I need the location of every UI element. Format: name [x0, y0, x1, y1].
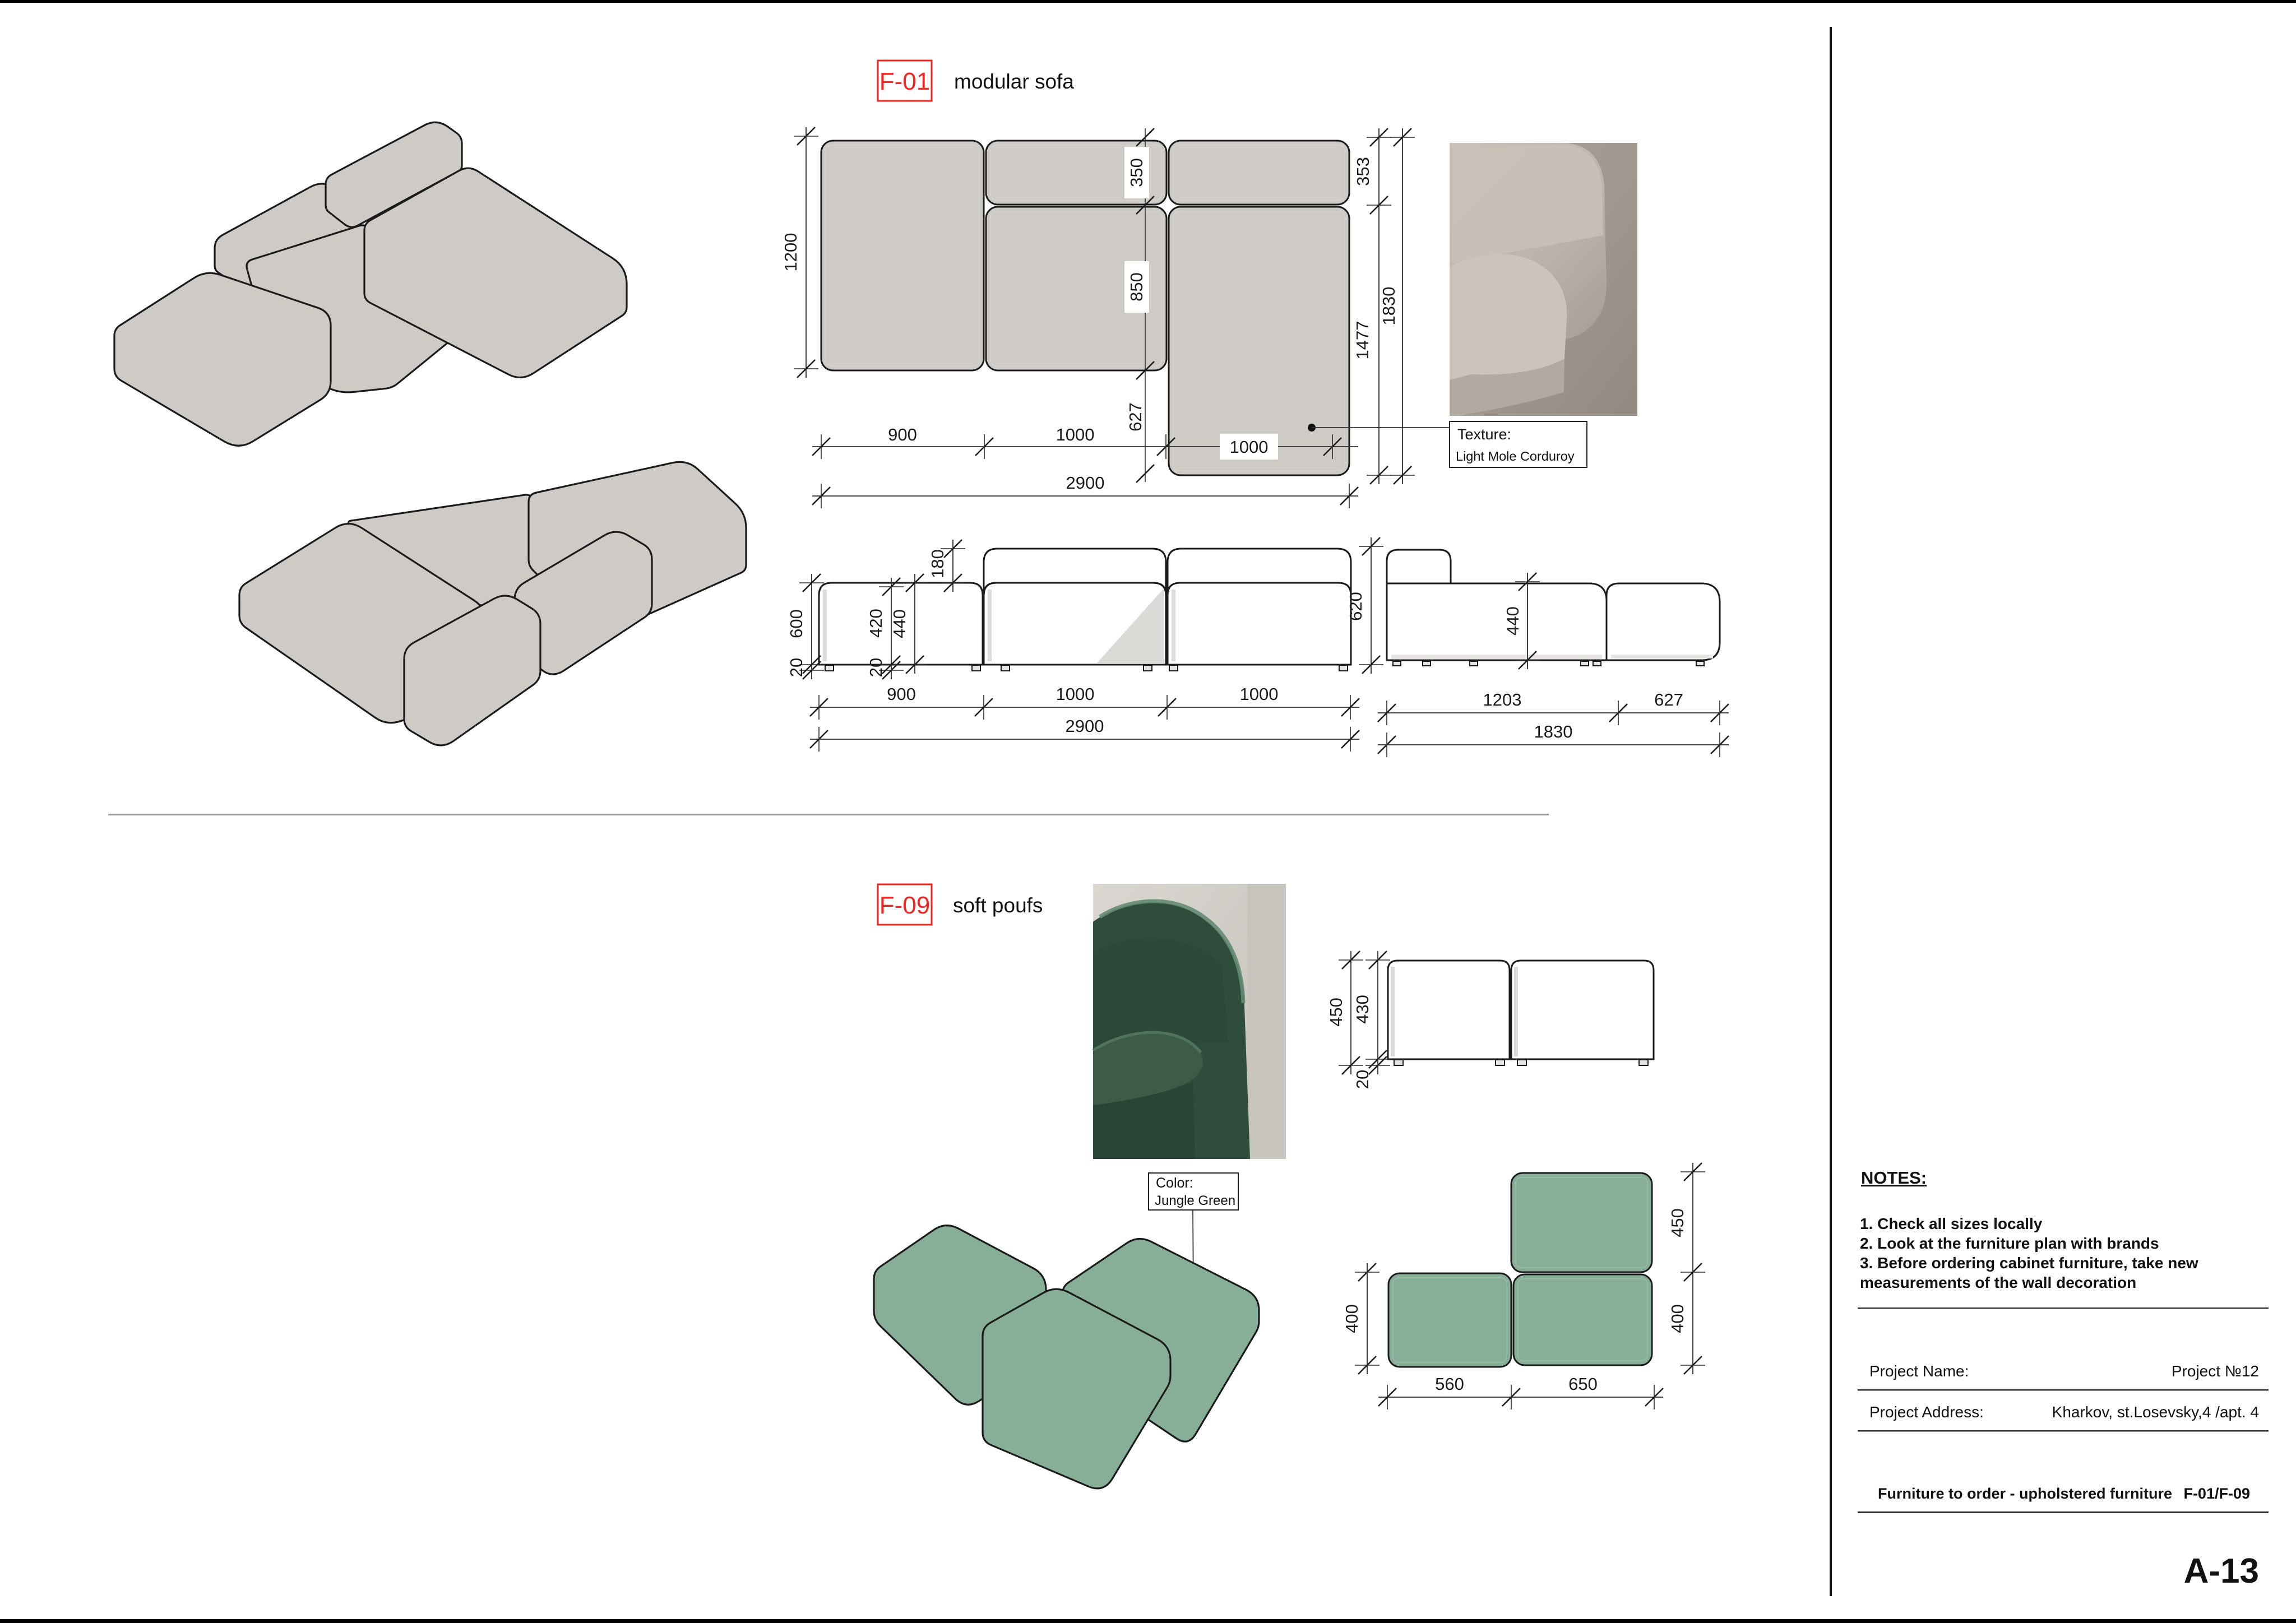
svg-text:Color:: Color:: [1156, 1175, 1193, 1191]
svg-text:900: 900: [888, 425, 917, 444]
svg-text:650: 650: [1568, 1374, 1598, 1394]
svg-text:627: 627: [1654, 690, 1683, 710]
svg-text:Project Address:: Project Address:: [1869, 1403, 1984, 1421]
svg-text:430: 430: [1353, 995, 1372, 1024]
svg-text:Texture:: Texture:: [1457, 426, 1511, 443]
svg-text:400: 400: [1668, 1304, 1687, 1333]
svg-text:1830: 1830: [1534, 722, 1573, 741]
svg-text:560: 560: [1435, 1374, 1464, 1394]
svg-text:1000: 1000: [1230, 437, 1269, 457]
svg-text:440: 440: [890, 609, 909, 638]
svg-text:900: 900: [887, 684, 916, 704]
svg-text:450: 450: [1326, 998, 1346, 1027]
svg-text:440: 440: [1503, 606, 1522, 636]
svg-text:20: 20: [786, 658, 806, 677]
svg-text:1830: 1830: [1379, 287, 1399, 326]
svg-text:Light Mole Corduroy: Light Mole Corduroy: [1456, 449, 1575, 463]
svg-text:Jungle Green: Jungle Green: [1155, 1193, 1235, 1208]
svg-text:F-01: F-01: [879, 68, 930, 95]
svg-text:1. Check all sizes locally: 1. Check all sizes locally: [1860, 1215, 2043, 1232]
svg-text:F-09: F-09: [879, 892, 930, 919]
svg-text:NOTES:: NOTES:: [1861, 1168, 1927, 1188]
svg-text:1000: 1000: [1056, 684, 1095, 704]
svg-text:1000: 1000: [1056, 425, 1095, 444]
svg-text:A-13: A-13: [2184, 1552, 2259, 1590]
svg-text:Project №12: Project №12: [2172, 1362, 2259, 1380]
svg-text:850: 850: [1127, 272, 1146, 302]
svg-text:600: 600: [786, 609, 806, 638]
svg-text:180: 180: [928, 549, 947, 578]
svg-text:1200: 1200: [781, 233, 800, 272]
svg-text:Kharkov, st.Losevsky,4 /apt. 4: Kharkov, st.Losevsky,4 /apt. 4: [2052, 1403, 2259, 1421]
svg-text:soft poufs: soft poufs: [953, 894, 1043, 917]
svg-text:Project Name:: Project Name:: [1869, 1362, 1969, 1380]
svg-text:3. Before ordering cabinet fur: 3. Before ordering cabinet furniture, ta…: [1860, 1254, 2198, 1272]
svg-text:2. Look at the furniture plan: 2. Look at the furniture plan with brand…: [1860, 1235, 2159, 1252]
svg-text:1477: 1477: [1353, 321, 1372, 360]
svg-text:627: 627: [1126, 402, 1145, 432]
svg-text:350: 350: [1127, 158, 1146, 187]
svg-text:1203: 1203: [1483, 690, 1522, 710]
svg-text:353: 353: [1353, 157, 1373, 186]
svg-text:20: 20: [866, 658, 886, 677]
svg-text:F-01/F-09: F-01/F-09: [2183, 1485, 2250, 1502]
svg-text:2900: 2900: [1066, 473, 1105, 493]
svg-text:modular sofa: modular sofa: [954, 70, 1074, 93]
svg-text:450: 450: [1668, 1208, 1687, 1237]
svg-text:20: 20: [1353, 1070, 1372, 1089]
svg-text:620: 620: [1346, 592, 1365, 621]
svg-text:420: 420: [866, 609, 886, 638]
svg-text:2900: 2900: [1066, 716, 1104, 736]
svg-text:Furniture to order - upholster: Furniture to order - upholstered furnitu…: [1878, 1485, 2172, 1502]
svg-text:measurements of the wall decor: measurements of the wall decoration: [1860, 1274, 2136, 1291]
svg-text:400: 400: [1342, 1304, 1362, 1333]
svg-text:1000: 1000: [1240, 684, 1279, 704]
